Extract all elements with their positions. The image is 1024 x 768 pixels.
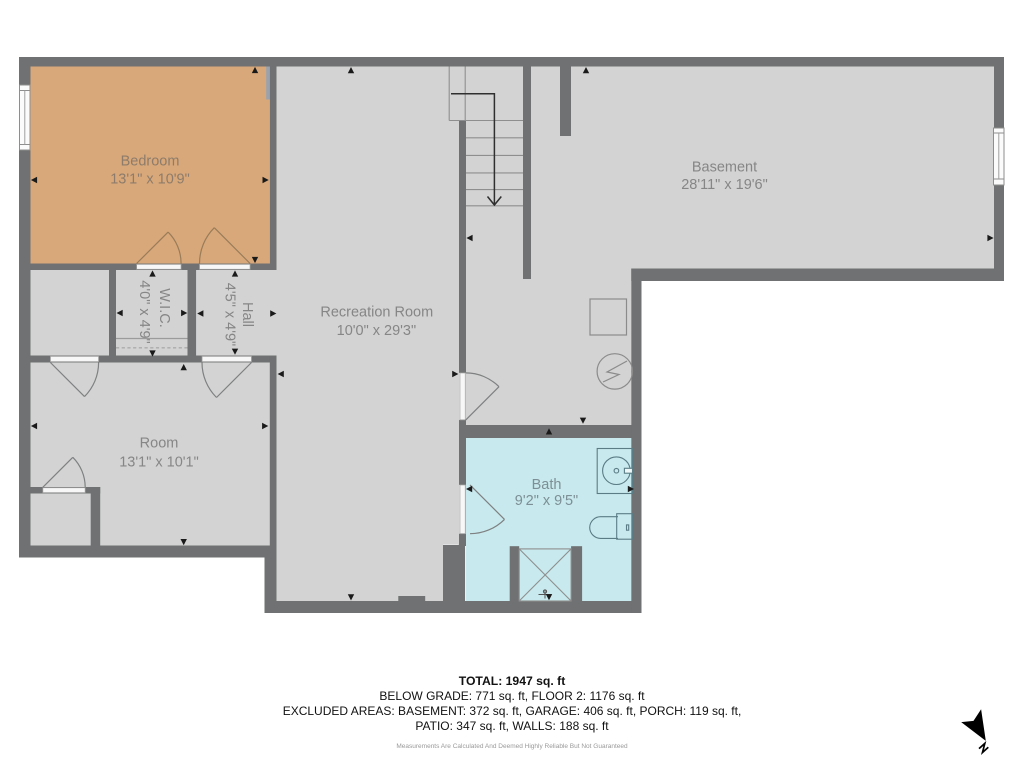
svg-text:EXCLUDED AREAS: BASEMENT: 372: EXCLUDED AREAS: BASEMENT: 372 sq. ft, GA… [283,704,742,718]
svg-text:4'0" x 4'9": 4'0" x 4'9" [136,280,152,343]
svg-text:9'2" x 9'5": 9'2" x 9'5" [515,493,578,509]
svg-text:Bedroom: Bedroom [121,154,180,170]
svg-text:13'1" x 10'9": 13'1" x 10'9" [110,172,190,188]
svg-text:10'0" x 29'3": 10'0" x 29'3" [337,323,417,339]
svg-text:Bath: Bath [532,477,562,493]
svg-text:Recreation Room: Recreation Room [320,305,433,321]
svg-text:13'1" x 10'1": 13'1" x 10'1" [119,455,199,471]
svg-text:4'5" x 4'9": 4'5" x 4'9" [222,283,238,346]
svg-text:Room: Room [140,436,179,452]
svg-text:TOTAL: 1947 sq. ft: TOTAL: 1947 sq. ft [459,674,566,688]
svg-text:Hall: Hall [239,302,255,327]
svg-text:BELOW GRADE: 771 sq. ft, FLOOR: BELOW GRADE: 771 sq. ft, FLOOR 2: 1176 s… [379,689,645,703]
svg-text:PATIO: 347 sq. ft, WALLS: 188: PATIO: 347 sq. ft, WALLS: 188 sq. ft [415,719,609,733]
svg-text:W.I.C.: W.I.C. [156,288,172,327]
svg-text:Basement: Basement [692,159,757,175]
svg-text:28'11" x 19'6": 28'11" x 19'6" [681,177,768,193]
svg-text:Measurements Are Calculated An: Measurements Are Calculated And Deemed H… [396,743,628,750]
